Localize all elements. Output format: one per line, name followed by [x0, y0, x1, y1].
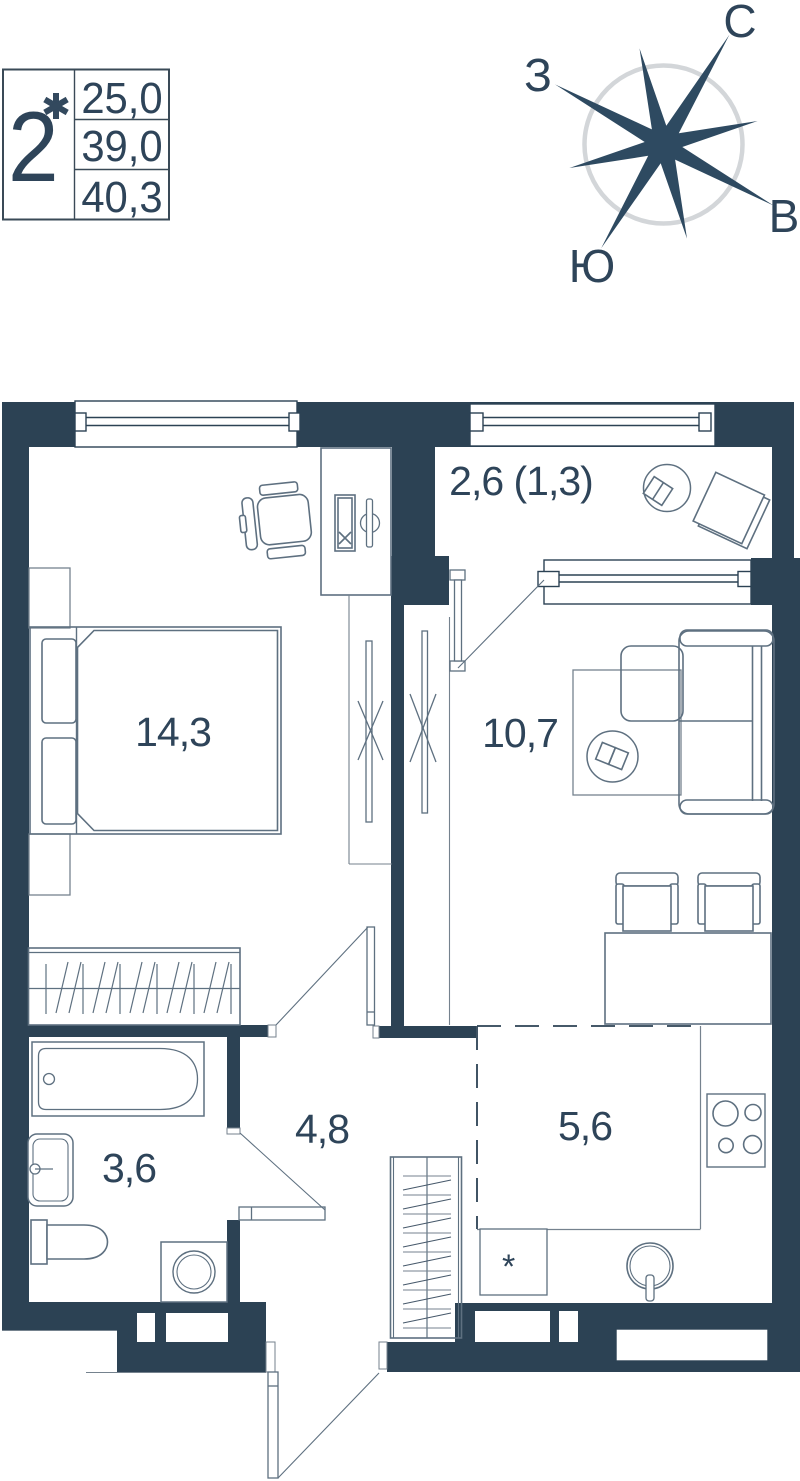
svg-text:14,3: 14,3	[135, 709, 211, 755]
svg-text:З: З	[524, 49, 552, 101]
svg-text:40,3: 40,3	[81, 173, 162, 222]
svg-text:В: В	[769, 190, 800, 242]
svg-text:4,8: 4,8	[295, 1106, 349, 1152]
svg-text:3,6: 3,6	[102, 1145, 156, 1191]
svg-text:Ю: Ю	[569, 240, 615, 292]
svg-text:*: *	[502, 1248, 515, 1286]
svg-text:25,0: 25,0	[81, 74, 162, 123]
svg-text:5,6: 5,6	[558, 1103, 612, 1149]
svg-text:10,7: 10,7	[482, 710, 558, 756]
svg-text:С: С	[723, 0, 756, 47]
svg-text:2,6 (1,3): 2,6 (1,3)	[449, 458, 593, 504]
svg-text:39,0: 39,0	[81, 122, 162, 171]
